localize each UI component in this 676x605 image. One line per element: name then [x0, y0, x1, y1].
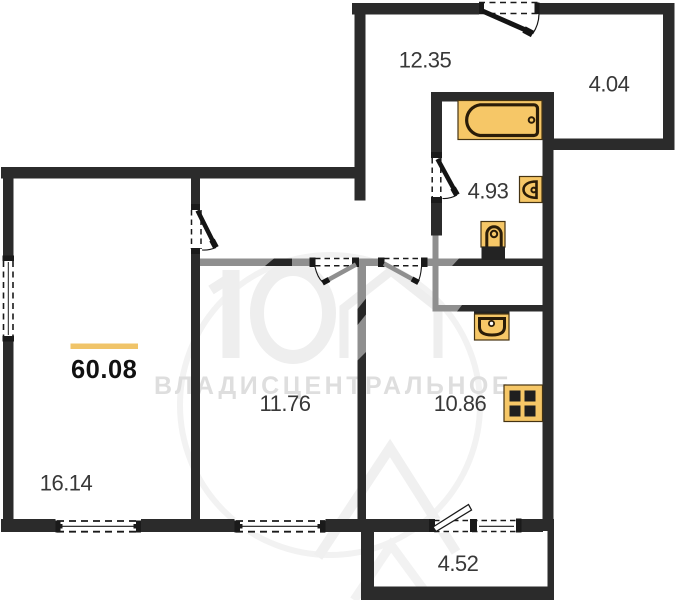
svg-text:60.08: 60.08: [71, 356, 137, 384]
svg-text:4.52: 4.52: [438, 551, 479, 576]
svg-text:4.93: 4.93: [468, 179, 509, 204]
svg-text:12.35: 12.35: [399, 48, 452, 73]
svg-text:16.14: 16.14: [40, 471, 93, 496]
svg-text:4.04: 4.04: [589, 72, 630, 97]
svg-text:10.86: 10.86: [434, 391, 487, 416]
svg-text:11.76: 11.76: [260, 391, 311, 416]
